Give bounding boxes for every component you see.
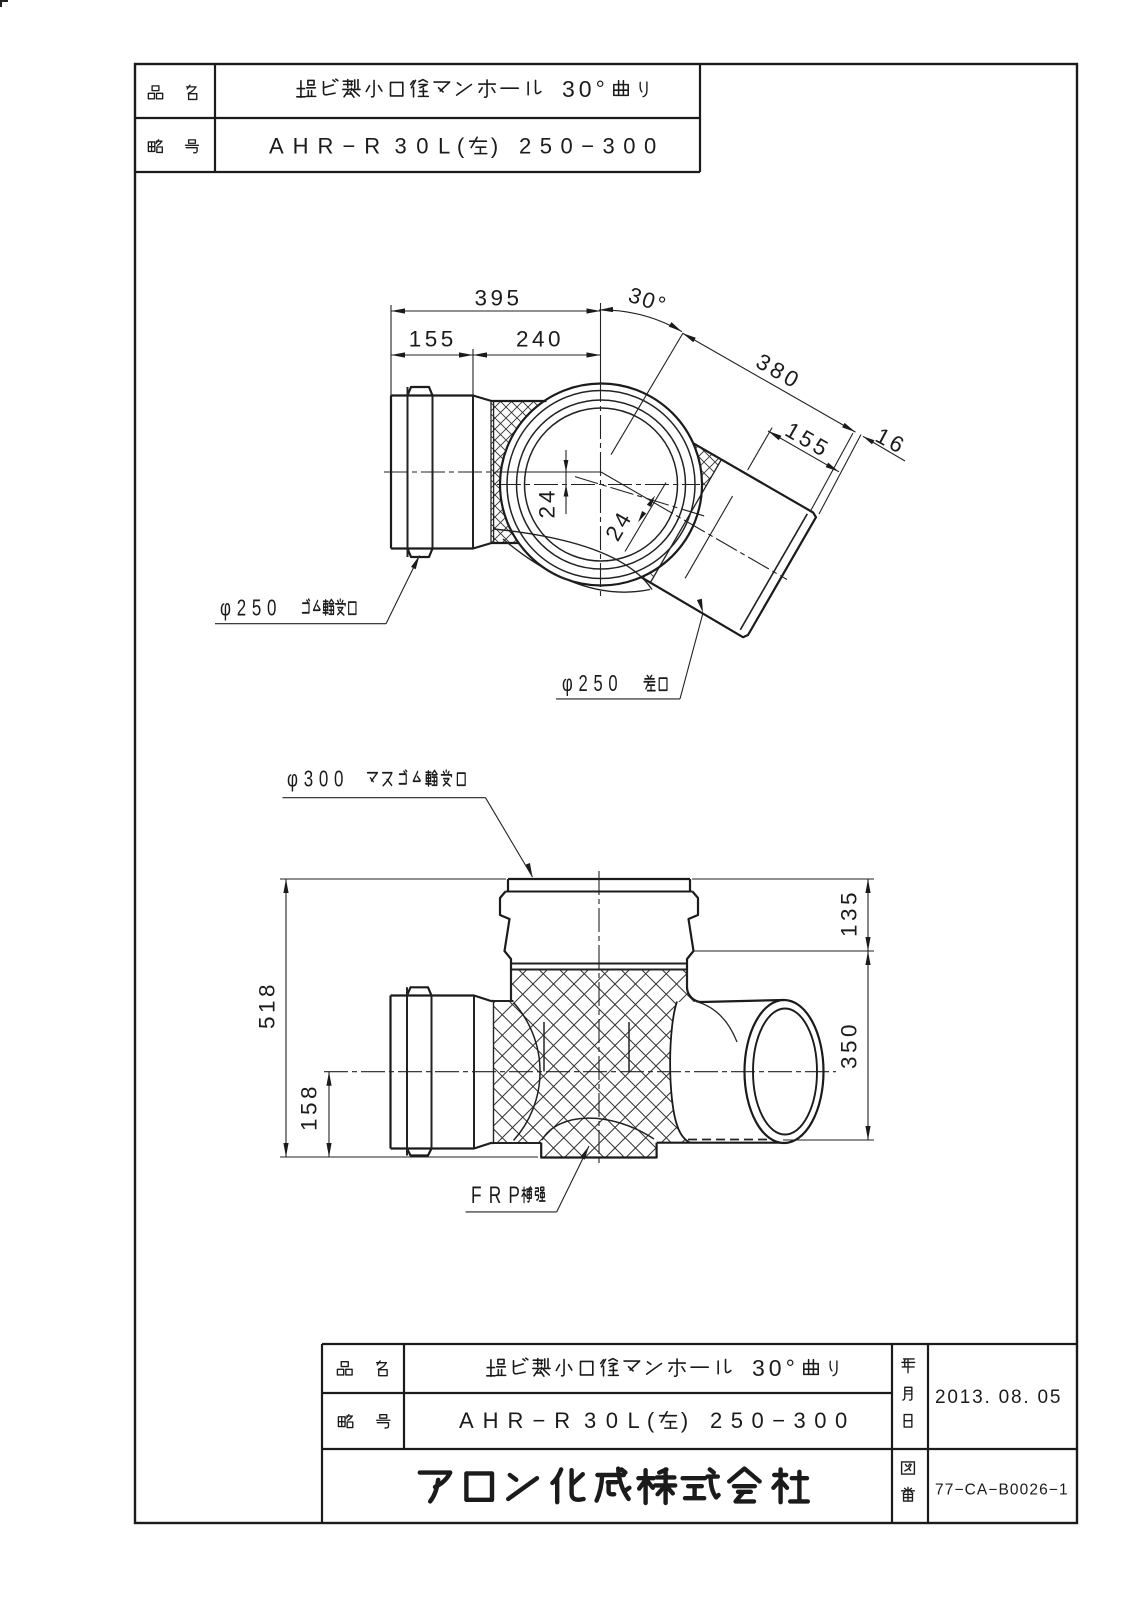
svg-text:77−CA−B0026−1: 77−CA−B0026−1 bbox=[935, 1482, 1069, 1499]
svg-text:φ300: φ300 bbox=[287, 766, 349, 792]
svg-text:φ250: φ250 bbox=[562, 671, 623, 696]
svg-text:(: ( bbox=[457, 134, 465, 159]
svg-text:(: ( bbox=[647, 1408, 655, 1433]
svg-text:2013. 08. 05: 2013. 08. 05 bbox=[935, 1387, 1062, 1408]
svg-text:30°: 30° bbox=[752, 1355, 799, 1381]
svg-text:350: 350 bbox=[837, 1021, 862, 1069]
svg-text:250−300: 250−300 bbox=[519, 134, 665, 159]
svg-text:135: 135 bbox=[837, 889, 862, 937]
svg-text:AHR−R: AHR−R bbox=[459, 1408, 579, 1433]
svg-text:518: 518 bbox=[255, 981, 280, 1029]
svg-text:158: 158 bbox=[297, 1083, 322, 1131]
svg-text:250−300: 250−300 bbox=[710, 1408, 856, 1433]
svg-text:24: 24 bbox=[535, 487, 560, 518]
svg-text:30L: 30L bbox=[584, 1408, 649, 1433]
svg-text:240: 240 bbox=[516, 327, 564, 352]
svg-text:30L: 30L bbox=[395, 134, 460, 159]
svg-text:30°: 30° bbox=[562, 76, 609, 102]
svg-text:AHR−R: AHR−R bbox=[269, 134, 389, 159]
svg-text:): ) bbox=[681, 1408, 688, 1433]
svg-text:FRP: FRP bbox=[471, 1182, 527, 1208]
svg-text:395: 395 bbox=[474, 286, 522, 311]
svg-text:φ250: φ250 bbox=[220, 595, 282, 621]
svg-text:): ) bbox=[491, 134, 498, 159]
svg-text:155: 155 bbox=[409, 327, 457, 352]
